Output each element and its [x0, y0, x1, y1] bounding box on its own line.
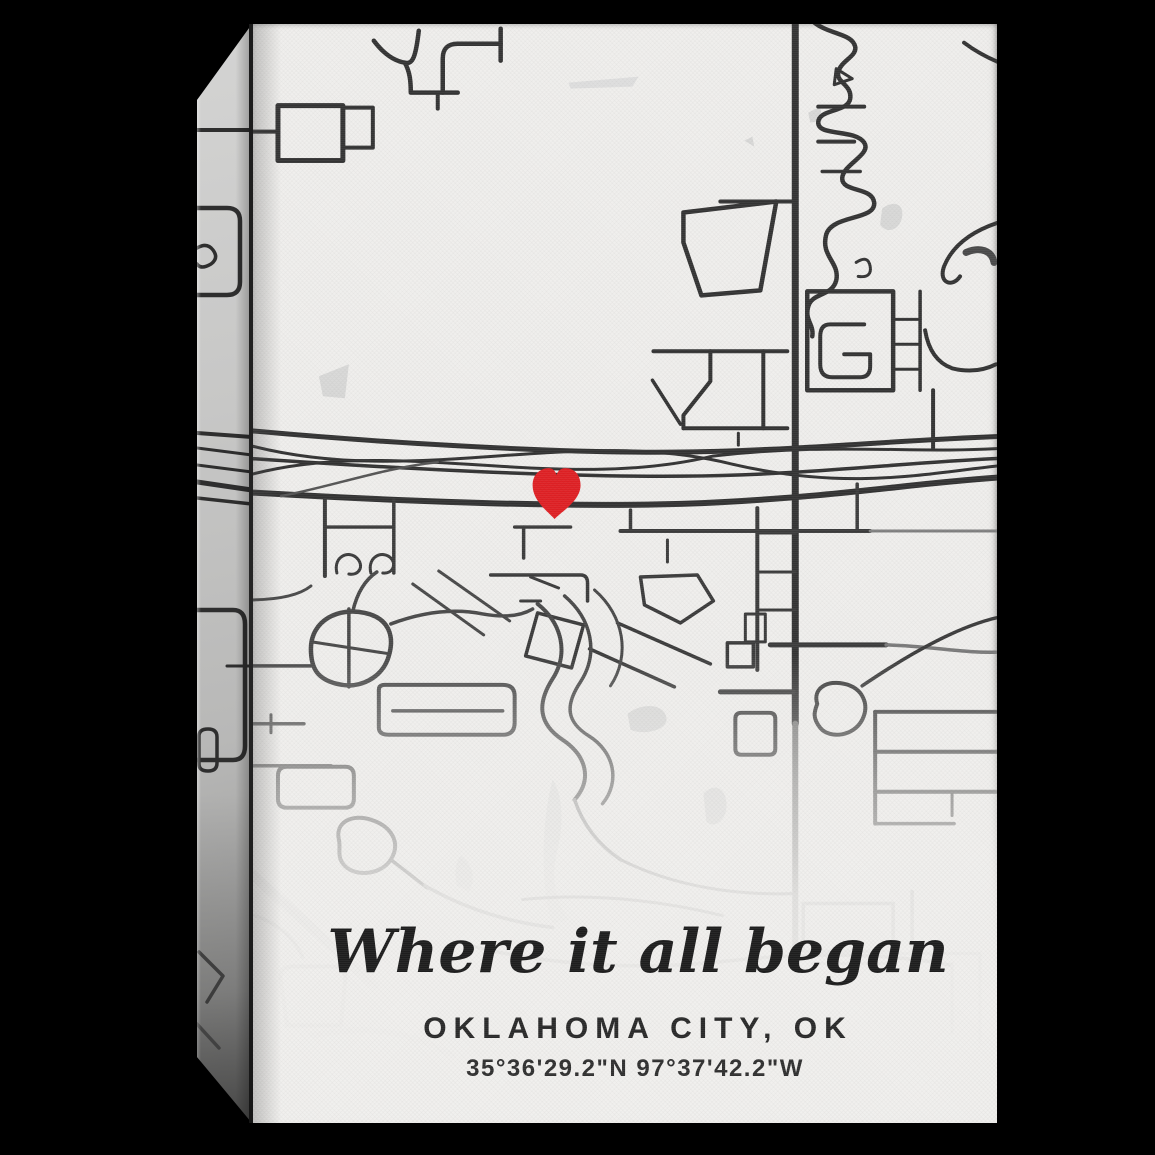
- canvas-side-face: [197, 24, 252, 1123]
- map-fade-overlay: [253, 654, 997, 1123]
- heart-location-marker-icon: [533, 468, 581, 519]
- map-highway: [253, 430, 997, 505]
- fold-shadow: [253, 24, 281, 1123]
- canvas-front-face: Where it all began OKLAHOMA CITY, OK 35°…: [253, 24, 997, 1123]
- product-photo-stage: Where it all began OKLAHOMA CITY, OK 35°…: [0, 0, 1155, 1155]
- side-bottom-shadow: [197, 24, 252, 1123]
